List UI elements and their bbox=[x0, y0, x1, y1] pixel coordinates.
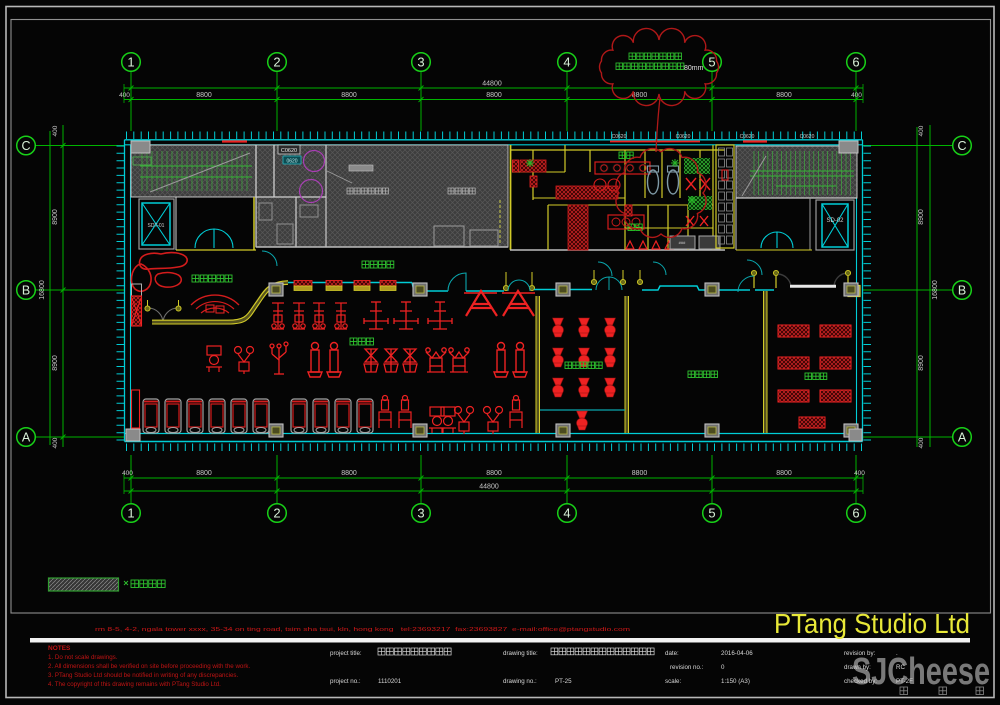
svg-text:project title:: project title: bbox=[330, 650, 362, 657]
svg-text:date:: date: bbox=[665, 650, 679, 657]
svg-text:44800: 44800 bbox=[482, 81, 502, 88]
svg-text:checked by:: checked by: bbox=[844, 678, 877, 685]
svg-text:0620: 0620 bbox=[286, 159, 297, 165]
svg-text:5: 5 bbox=[708, 506, 715, 521]
svg-text:A: A bbox=[958, 431, 967, 445]
svg-text:8800: 8800 bbox=[196, 92, 212, 99]
svg-text:400: 400 bbox=[52, 125, 59, 136]
svg-text:1110201: 1110201 bbox=[378, 678, 402, 685]
svg-text:C: C bbox=[957, 139, 966, 153]
svg-text:drawing no.:: drawing no.: bbox=[503, 678, 537, 685]
svg-text:PT-2F: PT-2F bbox=[896, 678, 913, 685]
svg-text:8800: 8800 bbox=[341, 92, 357, 99]
svg-text:3. PTang Studio Ltd should be: 3. PTang Studio Ltd should be notified i… bbox=[48, 672, 238, 679]
svg-text:400: 400 bbox=[52, 437, 59, 448]
svg-text:8800: 8800 bbox=[486, 470, 502, 477]
svg-text:400: 400 bbox=[122, 470, 133, 477]
svg-text:1:150 (A3): 1:150 (A3) bbox=[721, 678, 750, 685]
svg-text:2: 2 bbox=[273, 506, 280, 521]
svg-text:C0620: C0620 bbox=[740, 134, 755, 140]
svg-text:RC: RC bbox=[896, 664, 905, 671]
svg-text:SJCheese: SJCheese bbox=[852, 651, 990, 693]
svg-text:4: 4 bbox=[563, 55, 570, 70]
svg-text:2: 2 bbox=[273, 55, 280, 70]
svg-text:8900: 8900 bbox=[52, 209, 59, 225]
svg-text:6: 6 bbox=[852, 55, 859, 70]
svg-text:rm 8-5, 4-2, ngala tower xxxx,: rm 8-5, 4-2, ngala tower xxxx, 35-34 on … bbox=[95, 627, 630, 633]
svg-text:SD-02: SD-02 bbox=[826, 218, 844, 224]
svg-text:80mm: 80mm bbox=[684, 65, 704, 72]
svg-text:8900: 8900 bbox=[918, 209, 925, 225]
svg-text:PTang Studio Ltd: PTang Studio Ltd bbox=[774, 608, 970, 639]
svg-text:revision no.:: revision no.: bbox=[670, 664, 704, 671]
svg-text:4. The copyright of this drawi: 4. The copyright of this drawing remains… bbox=[48, 681, 221, 688]
svg-text:400: 400 bbox=[918, 125, 925, 136]
svg-text:8800: 8800 bbox=[486, 92, 502, 99]
svg-text:16800: 16800 bbox=[39, 280, 46, 300]
svg-text:3: 3 bbox=[417, 506, 424, 521]
svg-text:4: 4 bbox=[563, 506, 570, 521]
svg-text:C: C bbox=[21, 139, 30, 153]
svg-text:400: 400 bbox=[918, 437, 925, 448]
svg-text:2. All dimensions shall be ver: 2. All dimensions shall be verified on s… bbox=[48, 663, 251, 670]
svg-text:scale:: scale: bbox=[665, 678, 681, 685]
svg-text:B: B bbox=[22, 284, 30, 298]
svg-text:C0620: C0620 bbox=[676, 134, 691, 140]
svg-text:C0620: C0620 bbox=[800, 134, 815, 140]
svg-text:3: 3 bbox=[417, 55, 424, 70]
svg-text:8900: 8900 bbox=[918, 355, 925, 371]
svg-text:B: B bbox=[958, 284, 966, 298]
svg-text:0: 0 bbox=[721, 664, 725, 671]
svg-text:5: 5 bbox=[708, 55, 715, 70]
svg-text:8800: 8800 bbox=[776, 92, 792, 99]
svg-text:2016-04-06: 2016-04-06 bbox=[721, 650, 753, 657]
svg-text:project no.:: project no.: bbox=[330, 678, 361, 685]
svg-text:1: 1 bbox=[127, 55, 134, 70]
svg-text:drawing title:: drawing title: bbox=[503, 650, 538, 657]
svg-text:8800: 8800 bbox=[632, 470, 648, 477]
svg-text:NOTES: NOTES bbox=[48, 645, 71, 652]
svg-text:400: 400 bbox=[854, 470, 865, 477]
svg-text:400: 400 bbox=[119, 92, 130, 99]
svg-text:C0620: C0620 bbox=[281, 148, 297, 154]
svg-text:16800: 16800 bbox=[932, 280, 939, 300]
svg-text:1: 1 bbox=[127, 506, 134, 521]
svg-text:1. Do not scale drawings.: 1. Do not scale drawings. bbox=[48, 654, 118, 661]
svg-text:.: . bbox=[896, 650, 898, 657]
svg-text:revision by:: revision by: bbox=[844, 650, 876, 657]
svg-text:###: ### bbox=[679, 240, 686, 245]
svg-text:400: 400 bbox=[851, 92, 862, 99]
svg-text:PT-25: PT-25 bbox=[555, 678, 572, 685]
svg-text:8800: 8800 bbox=[196, 470, 212, 477]
svg-text:drawn by:: drawn by: bbox=[844, 664, 871, 671]
svg-text:C0620: C0620 bbox=[612, 134, 627, 140]
svg-text:SDT-01: SDT-01 bbox=[148, 223, 165, 229]
svg-text:A: A bbox=[22, 431, 31, 445]
svg-text:8900: 8900 bbox=[52, 355, 59, 371]
svg-text:44800: 44800 bbox=[479, 484, 499, 491]
svg-text:8800: 8800 bbox=[341, 470, 357, 477]
svg-text:8800: 8800 bbox=[776, 470, 792, 477]
svg-text:6: 6 bbox=[852, 506, 859, 521]
